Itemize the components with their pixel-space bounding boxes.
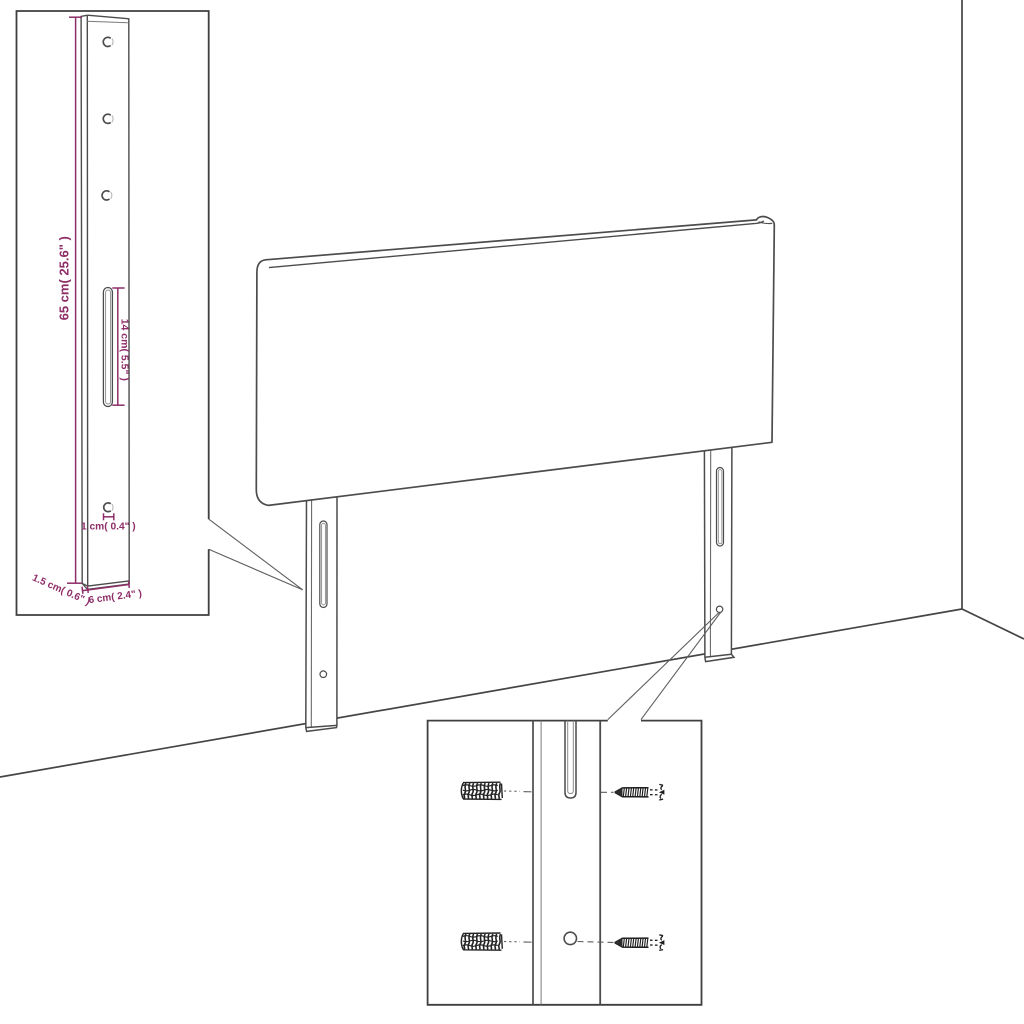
svg-text:1 cm( 0.4" ): 1 cm( 0.4" ) [81,522,136,533]
svg-text:65 cm( 25.6" ): 65 cm( 25.6" ) [57,236,72,320]
svg-text:14 cm( 5.5" ): 14 cm( 5.5" ) [119,319,131,381]
